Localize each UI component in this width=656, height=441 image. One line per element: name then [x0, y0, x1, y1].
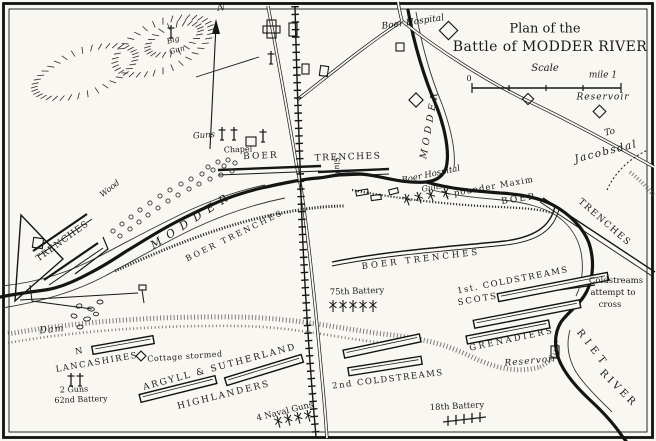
building-icon — [396, 43, 404, 51]
label-75th-battery: 75th Battery — [330, 287, 385, 297]
label-reservoir-north: Reservoir — [576, 94, 629, 103]
building-icon — [319, 65, 328, 76]
label-lancashires-n: N — [75, 347, 84, 357]
battle-map-canvas: Plan of the Battle of MODDER RIVER Scale… — [0, 0, 656, 441]
north-arrow — [196, 19, 259, 149]
label-dam: Dam — [39, 324, 65, 336]
station-building-icon — [389, 188, 399, 195]
unit-bar — [343, 334, 421, 358]
label-boer-nw: BOER — [243, 152, 279, 162]
building-icon — [302, 64, 309, 74]
compass-crossbar — [196, 57, 259, 77]
flag-icon — [139, 285, 146, 290]
boer-hospital-icon — [439, 21, 457, 39]
label-coldstreams-attempt-2: attempt to — [590, 289, 635, 298]
building-diamond-icon — [409, 93, 423, 107]
station-building-icon — [371, 194, 382, 200]
scale-start: 0 — [466, 75, 471, 83]
trench-east — [543, 198, 655, 272]
map-title-line1: Plan of the — [509, 23, 580, 36]
scale-label: Scale — [531, 64, 559, 74]
label-2-guns: 2 Guns — [60, 386, 89, 395]
building-icons — [32, 20, 606, 361]
map-title-line2: Battle of MODDER RIVER — [453, 40, 647, 54]
reservoir-north-icon — [593, 105, 606, 118]
label-sluit: Sluit — [332, 157, 342, 176]
battery-18-icon — [443, 412, 486, 426]
flag-pole-icon — [142, 290, 144, 303]
unit-bar — [92, 336, 154, 355]
scale-end: mile 1 — [589, 72, 617, 81]
label-coldstreams-attempt-1: Coldstreams — [589, 277, 643, 286]
kopje-hachures — [31, 15, 215, 101]
north-label: N — [217, 5, 225, 14]
trench-north — [318, 169, 389, 172]
station-building-icon — [356, 189, 369, 196]
label-guns-nw: Guns — [193, 131, 216, 141]
label-coldstreams-attempt-3: cross — [599, 301, 622, 310]
